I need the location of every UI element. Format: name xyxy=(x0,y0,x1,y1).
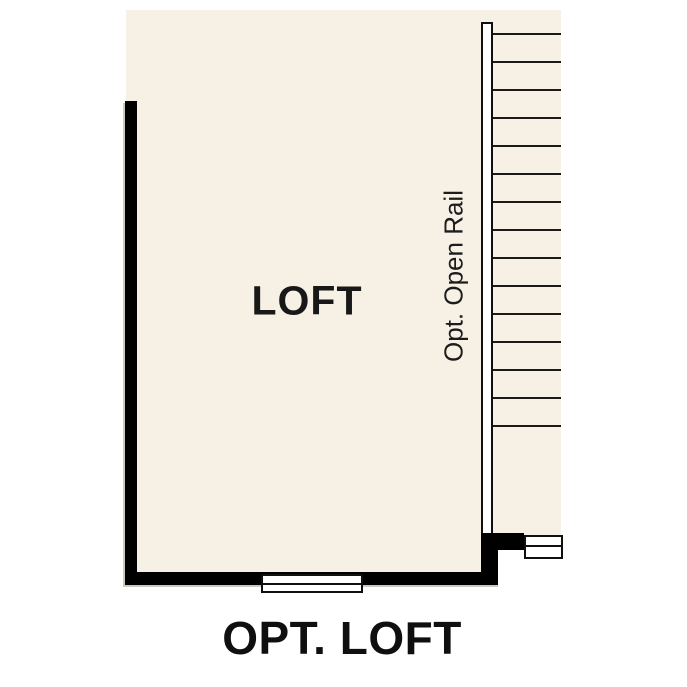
wall-corner-stub xyxy=(481,533,524,550)
stair-landing-step xyxy=(524,535,563,559)
tread-line xyxy=(493,61,561,63)
tread-line xyxy=(493,341,561,343)
tread-line xyxy=(493,397,561,399)
tread-line xyxy=(493,145,561,147)
wall-left xyxy=(125,101,137,585)
tread-line xyxy=(493,201,561,203)
window-symbol xyxy=(261,574,363,593)
tread-line xyxy=(493,229,561,231)
tread-line xyxy=(493,33,561,35)
tread-line xyxy=(493,257,561,259)
stair-treads xyxy=(493,10,561,535)
tread-line xyxy=(493,117,561,119)
loft-label: LOFT xyxy=(251,278,362,325)
open-rail-label: Opt. Open Rail xyxy=(439,190,470,362)
open-rail xyxy=(481,22,493,535)
tread-line xyxy=(493,369,561,371)
tread-line xyxy=(493,285,561,287)
tread-line xyxy=(493,425,561,427)
window-divider xyxy=(262,583,362,585)
floorplan: LOFT Opt. Open Rail OPT. LOFT xyxy=(0,0,687,687)
tread-line xyxy=(493,89,561,91)
plan-caption: OPT. LOFT xyxy=(222,611,462,665)
tread-line xyxy=(493,173,561,175)
tread-line xyxy=(493,313,561,315)
step-divider xyxy=(525,545,562,547)
